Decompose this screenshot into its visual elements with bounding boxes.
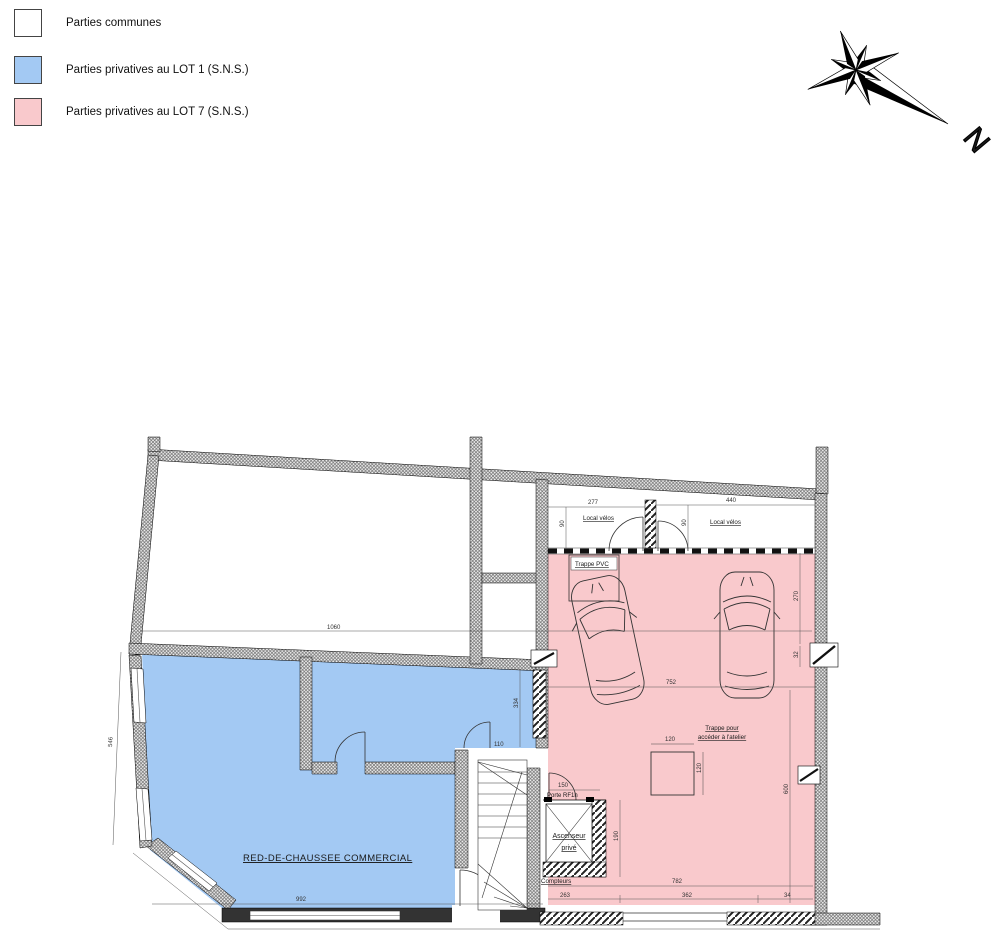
north-arrow: N: [792, 14, 996, 159]
dim-elevator-depth: 190: [614, 830, 620, 841]
staircase: [478, 760, 527, 910]
dim-bike-left-width: 277: [588, 500, 599, 506]
dim-bottom-a: 263: [560, 893, 571, 899]
dim-hatch-height: 120: [697, 762, 703, 773]
bike-partition: [548, 500, 815, 554]
legend-swatch-communes: [14, 9, 42, 37]
label-meters: Compteurs: [541, 878, 571, 885]
label-trappe-atelier-1: Trappe pour: [705, 725, 738, 732]
dim-garage-width: 752: [666, 680, 677, 686]
label-commercial: RED-DE-CHAUSSEE COMMERCIAL: [243, 853, 412, 864]
legend-label: Parties privatives au LOT 1 (S.N.S.): [66, 64, 249, 76]
legend-label: Parties communes: [66, 17, 161, 29]
legend-swatch-lot7: [14, 98, 42, 126]
dim-right-window: 32: [794, 651, 800, 658]
dim-commercial-width: 992: [296, 897, 307, 903]
dim-door-clear: 110: [494, 742, 504, 748]
label-trappe-pvc: Trappe PVC: [575, 561, 609, 568]
floor-plan-svg: N: [0, 0, 1007, 947]
dim-mid-wall: 334: [514, 697, 520, 708]
legend-item: Parties privatives au LOT 7 (S.N.S.): [14, 97, 249, 127]
legend-item: Parties privatives au LOT 1 (S.N.S.): [14, 55, 249, 85]
door-bike-left: [609, 517, 643, 551]
legend-label: Parties privatives au LOT 7 (S.N.S.): [66, 106, 249, 118]
dim-bike-right-width: 440: [726, 498, 737, 504]
dim-hatch-width: 120: [665, 737, 676, 743]
dim-bottom-c: 34: [784, 893, 791, 899]
dim-fire-door-width: 150: [558, 783, 569, 789]
label-bike-room-right: Local vélos: [710, 519, 741, 526]
dim-right-upper: 270: [794, 590, 800, 601]
label-elevator-1: Ascenseur: [552, 833, 586, 840]
legend-swatch-lot1: [14, 56, 42, 84]
label-bike-room-left: Local vélos: [583, 515, 614, 522]
dim-bottom-b: 362: [682, 893, 693, 899]
label-elevator-2: privé: [561, 845, 576, 852]
legend-item: Parties communes: [14, 8, 161, 38]
floor-plan-page: Parties communes Parties privatives au L…: [0, 0, 1007, 947]
dim-bike-left-depth: 90: [560, 520, 566, 527]
dim-bottom-total: 782: [672, 879, 683, 885]
dim-storefront-left: 546: [108, 736, 115, 747]
dim-bike-right-depth: 90: [682, 519, 688, 526]
north-letter: N: [957, 121, 996, 159]
label-trappe-atelier-2: accéder à l'atelier: [698, 734, 746, 741]
dim-right-lower: 600: [784, 783, 790, 794]
label-fire-door: Porte RF1h: [547, 793, 578, 799]
dim-top-room-width: 1060: [327, 625, 341, 631]
